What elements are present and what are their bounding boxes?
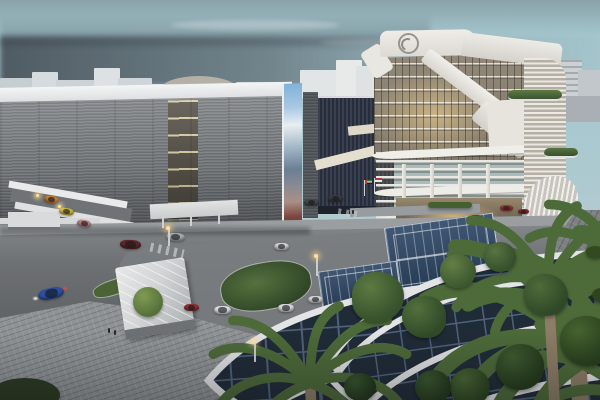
- tree: [484, 242, 516, 272]
- flag: [375, 178, 382, 182]
- light-pole: [168, 228, 170, 246]
- tree: [524, 274, 568, 316]
- light-pole: [316, 256, 318, 276]
- pedestrian: [352, 210, 354, 214]
- pole-light-glow: [314, 254, 318, 258]
- tree: [440, 254, 476, 288]
- pole-light-glow: [166, 226, 170, 230]
- ramp-light: [58, 205, 61, 208]
- uae-flag: [365, 180, 372, 184]
- hedge-row: [428, 202, 472, 208]
- scene-render: DP WORLD: [0, 0, 600, 400]
- bush: [586, 246, 600, 258]
- bottom-vignette: [0, 330, 600, 400]
- tree: [133, 287, 163, 317]
- ramp-light: [36, 194, 39, 197]
